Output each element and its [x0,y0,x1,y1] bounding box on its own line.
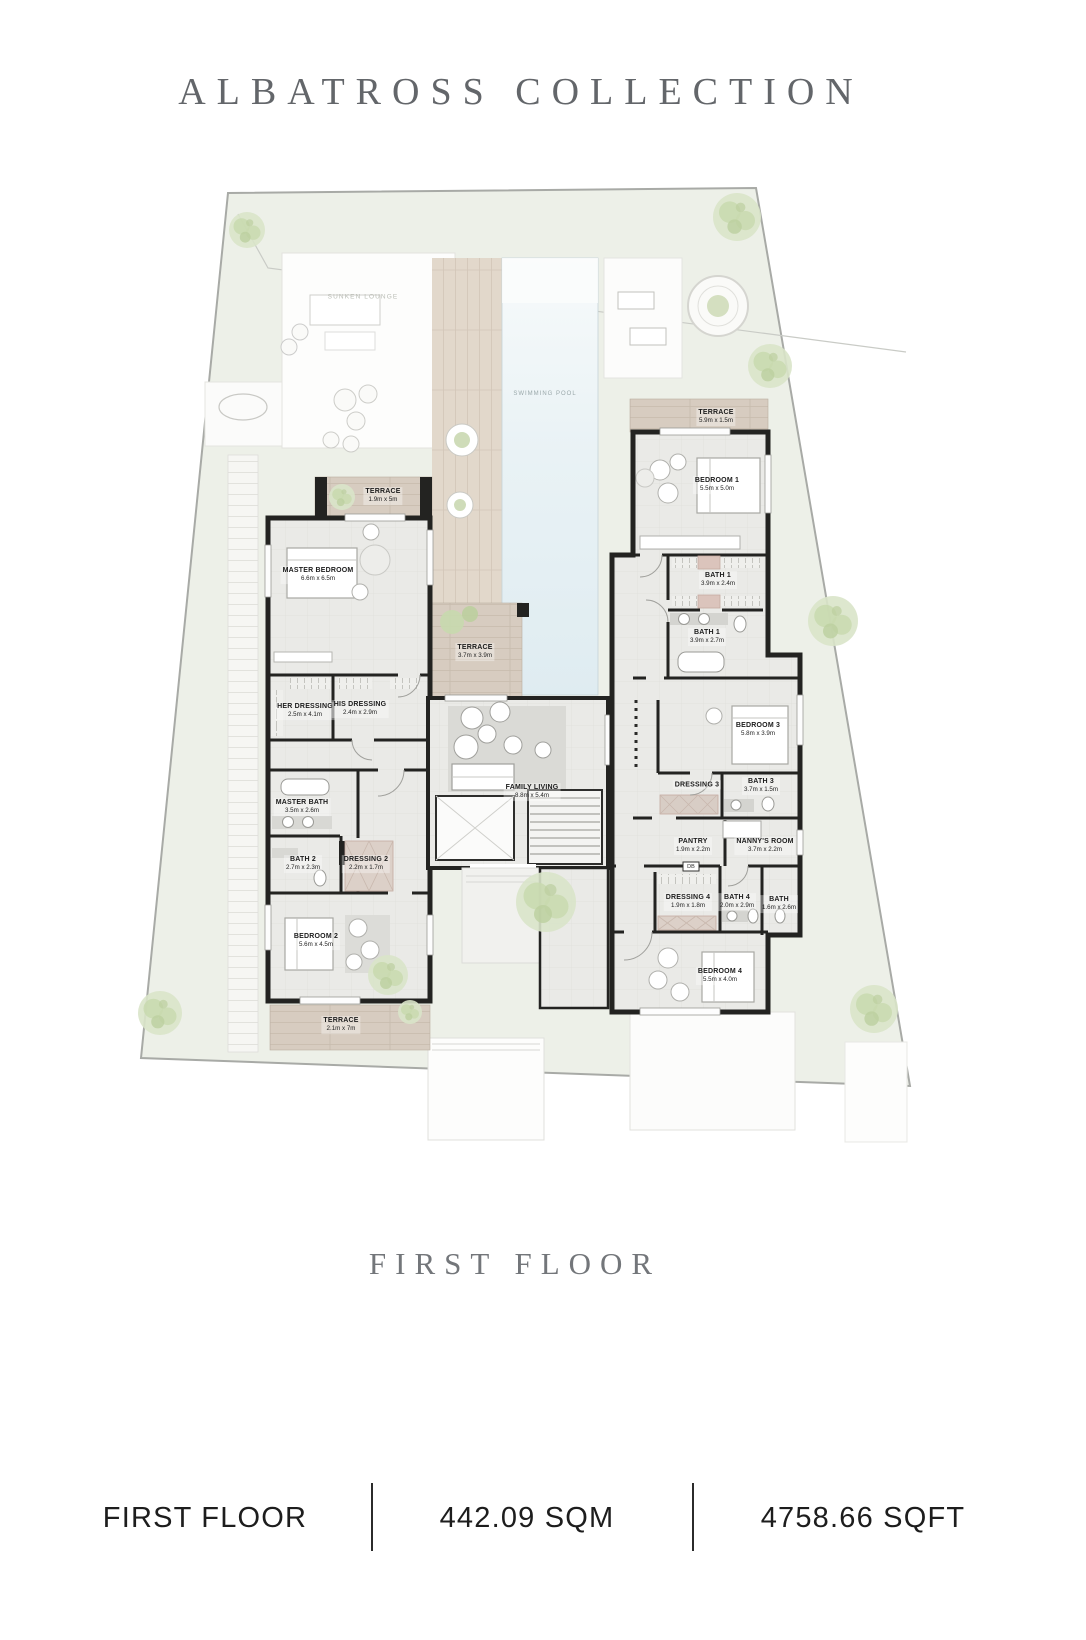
footer-floor-label: FIRST FLOOR [103,1502,307,1535]
room-label-family-living: FAMILY LIVING 8.8m x 5.4m [504,783,561,801]
room-label-terrace-left-top: TERRACE 1.9m x 5m [363,487,402,505]
room-label-nannys-room: NANNY'S ROOM 3.7m x 2.2m [734,837,795,855]
floor-plan: SUNKEN LOUNGE SWIMMING POOL DB TERRACE 1… [0,0,1086,1640]
room-label-his-dressing: HIS DRESSING 2.4m x 2.9m [332,700,389,718]
swimming-pool-label: SWIMMING POOL [513,391,576,397]
room-label-bedroom-1: BEDROOM 1 5.5m x 5.0m [693,476,741,494]
room-label-dressing-3: DRESSING 3 [673,780,721,789]
footer-area-sqft: 4758.66 SQFT [761,1502,966,1535]
room-label-bath-1-upper: BATH 1 3.9m x 2.4m [699,571,737,589]
left-wing [265,477,433,1050]
floor-heading: FIRST FLOOR [0,1246,1058,1282]
footer-area-sqm: 442.09 SQM [440,1502,615,1535]
room-label-bath-2: BATH 2 2.7m x 2.3m [284,855,322,873]
room-label-bedroom-3: BEDROOM 3 5.8m x 3.9m [734,721,782,739]
room-label-terrace-left-bottom: TERRACE 2.1m x 7m [321,1016,360,1034]
room-label-dressing-2: DRESSING 2 2.2m x 1.7m [342,855,390,873]
sunken-lounge-label: SUNKEN LOUNGE [328,294,399,301]
room-label-master-bedroom: MASTER BEDROOM 6.6m x 6.5m [281,566,356,584]
room-label-bedroom-2: BEDROOM 2 5.6m x 4.5m [292,932,340,950]
room-label-terrace-center: TERRACE 3.7m x 3.9m [455,643,494,661]
db-label: DB [687,864,695,870]
room-label-dressing-4: DRESSING 4 1.9m x 1.8m [664,893,712,911]
room-label-master-bath: MASTER BATH 3.5m x 2.6m [274,798,331,816]
room-label-terrace-right-top: TERRACE 5.9m x 1.5m [696,408,735,426]
room-label-bath-5: BATH 1.6m x 2.6m [760,895,798,913]
room-label-bath-1-lower: BATH 1 3.9m x 2.7m [688,628,726,646]
room-label-her-dressing: HER DRESSING 2.5m x 4.1m [275,702,335,720]
room-label-pantry: PANTRY 1.9m x 2.2m [674,837,712,855]
room-label-bedroom-4: BEDROOM 4 5.5m x 4.0m [696,967,744,985]
floor-plan-drawing [0,0,1086,1640]
room-label-bath-4: BATH 4 2.0m x 2.9m [718,893,756,911]
room-label-bath-3: BATH 3 3.7m x 1.5m [742,777,780,795]
footer-divider-1 [371,1483,373,1551]
pool-area [432,258,598,698]
page: ALBATROSS COLLECTION [0,0,1086,1640]
footer-divider-2 [692,1483,694,1551]
